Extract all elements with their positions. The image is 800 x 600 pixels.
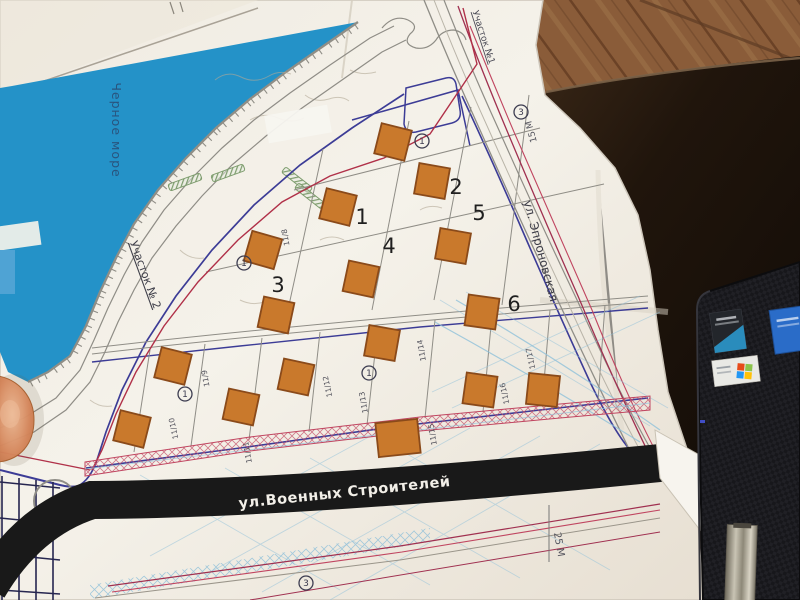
scene-canvas: Черное море bbox=[0, 0, 800, 600]
building-footprint bbox=[278, 359, 315, 396]
building-footprint bbox=[258, 297, 295, 334]
circle-marker-number: 1 bbox=[241, 259, 247, 269]
circle-marker-number: 1 bbox=[419, 137, 425, 147]
building-footprint bbox=[343, 261, 380, 298]
cpu-sticker bbox=[709, 309, 746, 353]
building-footprint bbox=[113, 410, 151, 448]
annotation-number: 3 bbox=[271, 273, 284, 297]
building-footprint bbox=[223, 389, 260, 426]
building-footprint bbox=[374, 123, 412, 161]
annotation-number: 2 bbox=[449, 175, 462, 199]
building-footprint bbox=[154, 347, 192, 385]
building-footprint bbox=[319, 188, 357, 226]
sea-fold-patch bbox=[0, 250, 15, 294]
annotation-number: 5 bbox=[472, 201, 485, 225]
annotation-number: 4 bbox=[382, 234, 395, 258]
building-footprint bbox=[462, 372, 497, 407]
laptop bbox=[697, 262, 800, 600]
building-footprint bbox=[526, 373, 560, 407]
building-footprint bbox=[435, 228, 471, 264]
building-footprint bbox=[375, 419, 420, 457]
circle-marker-number: 3 bbox=[303, 579, 309, 589]
building-footprint bbox=[464, 294, 499, 329]
windows-sticker bbox=[712, 355, 761, 386]
laptop-hinge bbox=[725, 523, 758, 600]
annotation-number: 1 bbox=[355, 205, 368, 229]
building-footprint bbox=[364, 325, 400, 361]
circle-marker-number: 3 bbox=[518, 108, 524, 118]
sea-label: Черное море bbox=[109, 82, 124, 177]
blue-sticker bbox=[769, 306, 800, 354]
building-footprint bbox=[414, 163, 450, 199]
annotation-number: 6 bbox=[507, 292, 520, 316]
circle-marker-number: 1 bbox=[366, 369, 372, 379]
circle-marker-number: 1 bbox=[182, 390, 188, 400]
laptop-led bbox=[700, 420, 705, 423]
photo-of-cadastral-site-plan: Черное море bbox=[0, 0, 800, 600]
